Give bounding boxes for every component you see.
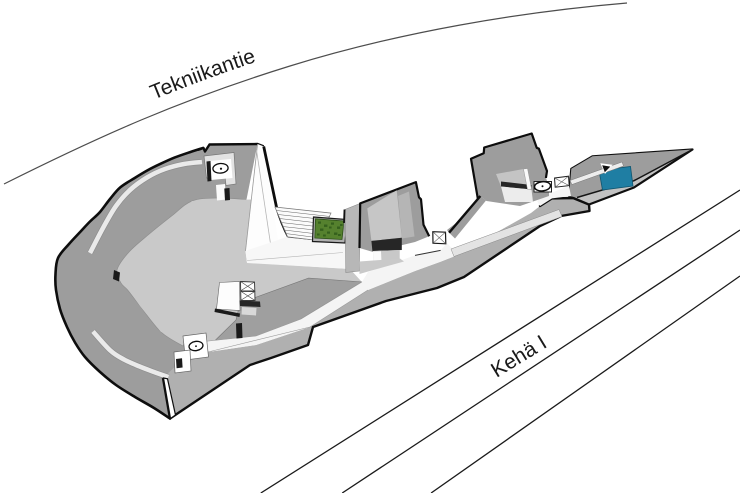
svg-text:Kehä I: Kehä I [487,331,551,382]
